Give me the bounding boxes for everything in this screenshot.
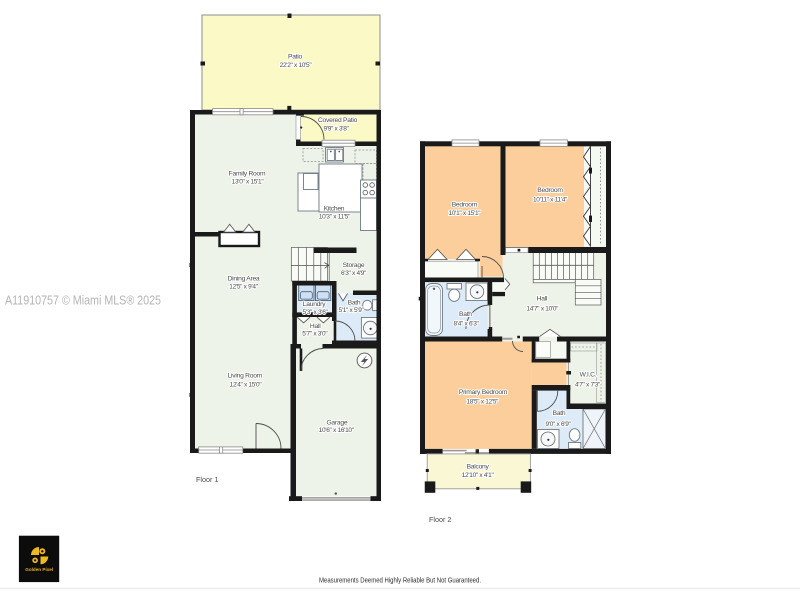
svg-text:Dining Area: Dining Area: [228, 275, 260, 282]
svg-text:10'11" x 11'4": 10'11" x 11'4": [533, 196, 568, 203]
svg-text:Floor 1: Floor 1: [196, 475, 218, 484]
svg-text:Bedroom: Bedroom: [537, 187, 563, 194]
svg-text:Bath: Bath: [459, 311, 472, 318]
svg-text:Primary Bedroom: Primary Bedroom: [459, 389, 508, 396]
svg-text:Kitchen: Kitchen: [324, 206, 345, 213]
svg-text:5'7" x 3'0": 5'7" x 3'0": [302, 331, 328, 338]
svg-text:6'3" x 4'9": 6'3" x 4'9": [341, 270, 367, 277]
svg-text:Hall: Hall: [310, 323, 321, 330]
svg-text:A11910757 © Miami MLS® 2025: A11910757 © Miami MLS® 2025: [5, 294, 161, 308]
svg-text:10'3" x 11'5": 10'3" x 11'5": [319, 214, 351, 221]
svg-text:13'0" x 15'1": 13'0" x 15'1": [232, 179, 265, 186]
svg-text:22'2" x 10'5": 22'2" x 10'5": [280, 62, 313, 69]
svg-text:12'4" x 15'0": 12'4" x 15'0": [230, 382, 263, 389]
svg-text:Laundry: Laundry: [303, 301, 326, 308]
svg-text:14'7" x 10'0": 14'7" x 10'0": [526, 305, 559, 312]
svg-text:5'1" x 5'9": 5'1" x 5'9": [338, 307, 364, 314]
svg-text:Hall: Hall: [537, 295, 548, 302]
svg-text:Storage: Storage: [343, 262, 365, 269]
svg-text:18'5" x 12'5": 18'5" x 12'5": [466, 399, 499, 406]
svg-text:Covered Patio: Covered Patio: [318, 117, 358, 124]
svg-text:9'9" x 3'8": 9'9" x 3'8": [323, 126, 349, 133]
svg-text:Measurements Deemed Highly Rel: Measurements Deemed Highly Reliable But …: [319, 576, 481, 585]
svg-text:Garage: Garage: [326, 419, 347, 426]
svg-text:Bedroom: Bedroom: [452, 201, 478, 208]
svg-text:Bath: Bath: [553, 410, 566, 417]
svg-text:9'0" x 6'9": 9'0" x 6'9": [545, 421, 571, 428]
svg-text:Floor 2: Floor 2: [429, 515, 451, 524]
svg-text:Golden Pixel: Golden Pixel: [25, 567, 53, 572]
svg-text:10'1" x 15'1": 10'1" x 15'1": [449, 210, 482, 217]
svg-text:Living Room: Living Room: [228, 373, 263, 380]
svg-text:5'3" x 3'6": 5'3" x 3'6": [302, 309, 328, 316]
svg-text:12'5" x 9'4": 12'5" x 9'4": [229, 284, 258, 291]
svg-text:10'6" x 16'10": 10'6" x 16'10": [319, 427, 355, 434]
svg-text:4'7" x 7'3": 4'7" x 7'3": [575, 381, 601, 388]
svg-text:Balcony: Balcony: [467, 464, 490, 471]
svg-text:Patio: Patio: [288, 54, 303, 61]
svg-text:8'4" x 6'3": 8'4" x 6'3": [453, 321, 479, 328]
svg-text:Bath: Bath: [348, 300, 361, 307]
svg-text:Family Room: Family Room: [229, 170, 266, 177]
svg-text:W.I.C.: W.I.C.: [580, 372, 597, 379]
svg-text:12'10" x 4'1": 12'10" x 4'1": [462, 472, 495, 479]
